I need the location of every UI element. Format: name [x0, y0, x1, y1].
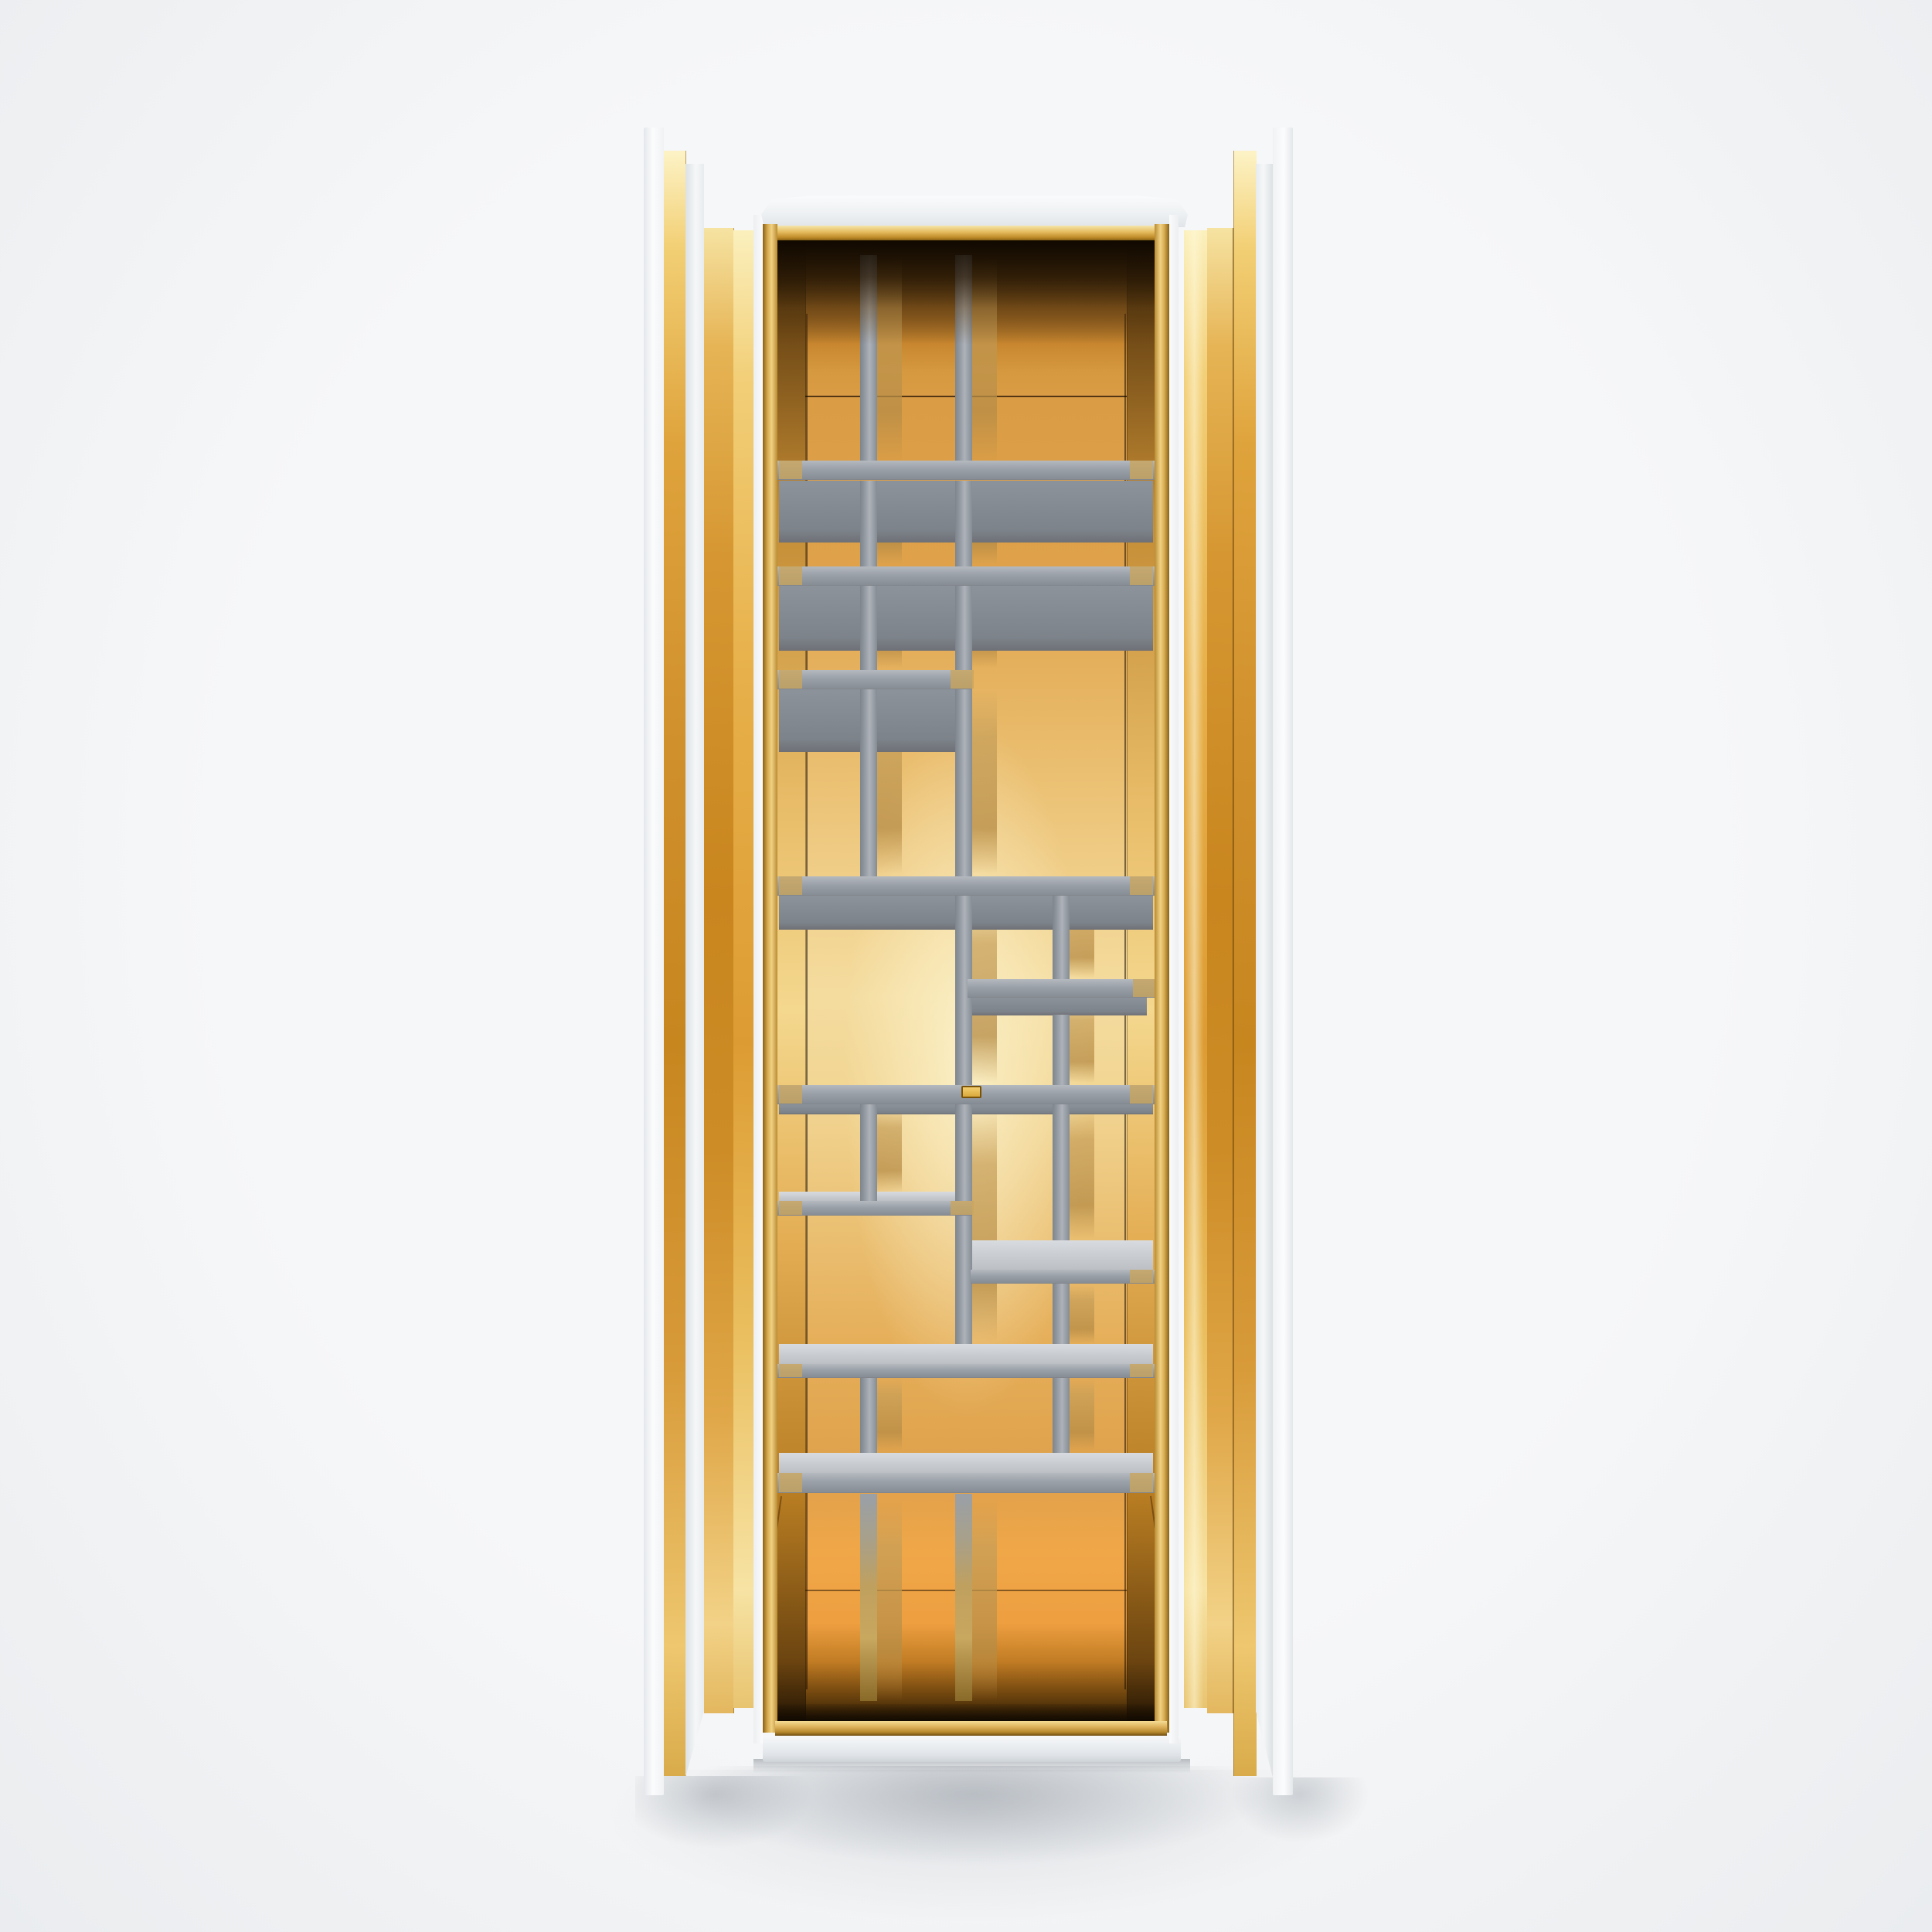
shelf-row-9: [777, 1364, 1155, 1378]
left-door-white-reveal: [685, 164, 704, 1779]
shelf-row-1: [777, 461, 1155, 480]
divider-right: [1053, 1376, 1070, 1453]
product-render-wardrobe: [0, 0, 1932, 1932]
shelf-end-cap: [1130, 1364, 1153, 1377]
cabinet-interior: [777, 240, 1155, 1721]
left-door-gold-panel-mid: [704, 228, 734, 1713]
shelf-row-5-right: [968, 979, 1155, 998]
divider-left: [860, 1376, 877, 1453]
right-door-white-outer-panel: [1273, 128, 1293, 1795]
right-door-edge-white-sliver: [1169, 215, 1179, 1743]
divider-center: [955, 586, 972, 876]
divider-left-floor: [860, 1494, 877, 1701]
divider-left: [860, 586, 877, 670]
cabinet-top-gold-trim: [775, 226, 1168, 240]
shelf-row-4: [777, 876, 1155, 896]
divider-reflection: [877, 1495, 902, 1701]
shelf-row-2: [777, 566, 1155, 586]
shelf-row-7-left: [777, 1201, 972, 1216]
base-white-plinth: [763, 1736, 1181, 1762]
interior-ceiling-shadow: [777, 240, 1155, 345]
shelf-end-cap: [1130, 876, 1153, 895]
divider-reflection: [1070, 1285, 1094, 1344]
divider-reflection: [877, 1378, 902, 1451]
cabinet-front-edge-left: [763, 224, 777, 1733]
shelf-row-10: [777, 1473, 1155, 1493]
divider-center: [955, 481, 972, 566]
shelf-end-cap: [1130, 566, 1153, 585]
left-door-white-outer-panel: [644, 128, 664, 1795]
cabinet-top-cap: [761, 196, 1188, 227]
shelf-underside: [968, 997, 1147, 1015]
shelf-end-cap: [779, 1364, 802, 1377]
divider-right: [1053, 1283, 1070, 1344]
divider-left: [860, 1104, 877, 1201]
shelf-end-cap: [779, 566, 802, 585]
shelf-end-cap: [779, 1085, 802, 1104]
left-door-edge-white-sliver: [753, 215, 763, 1743]
divider-left: [860, 689, 877, 876]
cabinet-front-edge-right: [1155, 224, 1169, 1733]
shelf-end-cap: [779, 670, 802, 689]
shelf-row-8-right: [971, 1270, 1155, 1284]
right-door-gold-panel-inner: [1184, 230, 1207, 1708]
shelf-end-cap: [1130, 461, 1153, 479]
divider-right: [1053, 896, 1070, 979]
brand-logo-plaque: [961, 1086, 981, 1098]
divider-center-floor: [955, 1494, 972, 1701]
divider-left: [860, 481, 877, 566]
divider-reflection: [972, 1495, 997, 1701]
right-door-gold-strip-outer: [1233, 151, 1257, 1776]
base-gold-rail: [775, 1721, 1167, 1736]
right-door-gold-panel-mid: [1207, 228, 1234, 1713]
divider-right: [1053, 1015, 1070, 1085]
divider-reflection: [972, 1106, 997, 1342]
right-door-white-reveal: [1256, 164, 1273, 1779]
divider-right: [1053, 1104, 1070, 1240]
interior-floor-front-shadow: [777, 1704, 1155, 1721]
shelf-end-cap: [1133, 979, 1155, 997]
shelf-top-face: [971, 1240, 1153, 1270]
shelf-end-cap: [779, 1473, 802, 1492]
shelf-top-face: [779, 1344, 1153, 1364]
shelf-end-cap: [951, 1201, 974, 1215]
floor-shadow-right-door: [1230, 1777, 1369, 1843]
divider-reflection: [972, 690, 997, 874]
shelf-end-cap: [779, 461, 802, 479]
left-door-gold-strip-outer: [664, 151, 686, 1776]
shelf-end-cap: [779, 876, 802, 895]
shelf-end-cap: [1130, 1085, 1153, 1104]
divider-reflection: [877, 1106, 902, 1192]
divider-center: [955, 1104, 972, 1344]
left-door-gold-panel-inner: [733, 230, 753, 1708]
shelf-top-face: [779, 1453, 1153, 1473]
shelf-end-cap: [1130, 1270, 1153, 1283]
shelf-end-cap: [951, 670, 974, 689]
divider-reflection: [1070, 1378, 1094, 1451]
shelf-row-3-left: [777, 670, 972, 689]
shelf-end-cap: [1130, 1473, 1153, 1492]
divider-reflection: [1070, 1106, 1094, 1239]
shelf-end-cap: [779, 1201, 802, 1215]
